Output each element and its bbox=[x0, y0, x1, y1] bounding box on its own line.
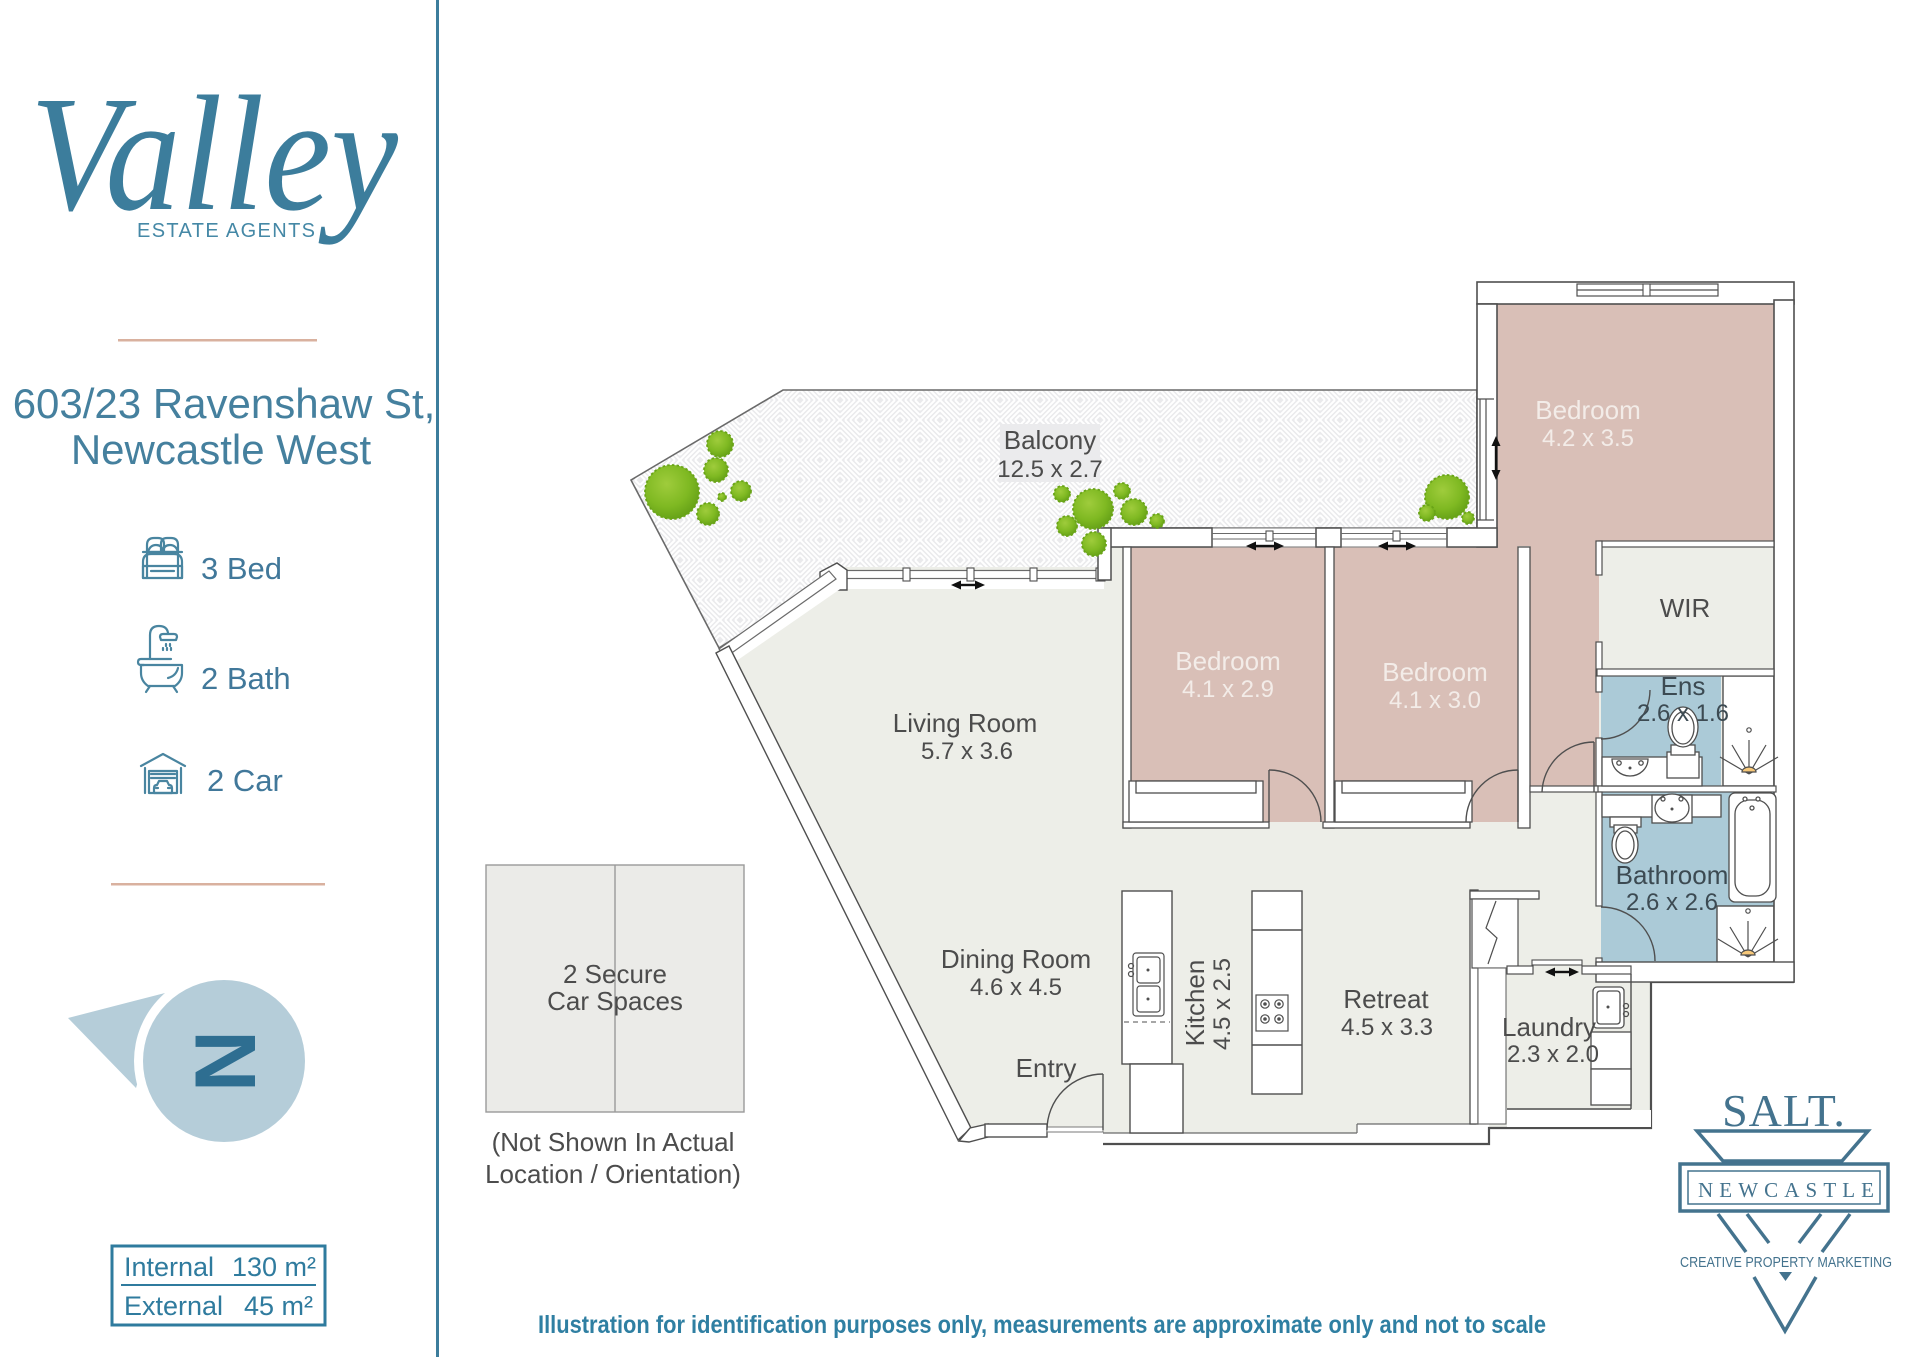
svg-text:External: External bbox=[124, 1291, 223, 1321]
svg-text:45 m²: 45 m² bbox=[244, 1291, 313, 1321]
svg-text:Living Room: Living Room bbox=[893, 708, 1038, 738]
svg-text:Bathroom: Bathroom bbox=[1616, 860, 1729, 890]
svg-text:CREATIVE PROPERTY MARKETING: CREATIVE PROPERTY MARKETING bbox=[1680, 1254, 1892, 1271]
svg-text:Entry: Entry bbox=[1016, 1053, 1077, 1083]
svg-text:N: N bbox=[178, 1030, 274, 1092]
svg-text:4.2 x 3.5: 4.2 x 3.5 bbox=[1542, 425, 1634, 452]
svg-text:12.5 x 2.7: 12.5 x 2.7 bbox=[997, 456, 1102, 483]
svg-text:SALT.: SALT. bbox=[1722, 1085, 1846, 1136]
svg-text:5.7 x 3.6: 5.7 x 3.6 bbox=[921, 738, 1013, 765]
svg-text:4.5 x 3.3: 4.5 x 3.3 bbox=[1341, 1014, 1433, 1041]
svg-text:Dining Room: Dining Room bbox=[941, 944, 1091, 974]
svg-text:ESTATE AGENTS: ESTATE AGENTS bbox=[137, 220, 315, 242]
svg-text:4.5 x 2.5: 4.5 x 2.5 bbox=[1209, 958, 1236, 1050]
svg-text:NEWCASTLE: NEWCASTLE bbox=[1698, 1178, 1874, 1202]
svg-text:2.6 x 2.6: 2.6 x 2.6 bbox=[1626, 889, 1718, 916]
svg-text:130 m²: 130 m² bbox=[232, 1252, 316, 1282]
svg-text:Car Spaces: Car Spaces bbox=[547, 986, 683, 1016]
svg-text:Bedroom: Bedroom bbox=[1175, 646, 1281, 676]
svg-text:Location / Orientation): Location / Orientation) bbox=[485, 1159, 741, 1189]
svg-text:Retreat: Retreat bbox=[1343, 984, 1429, 1014]
svg-text:WIR: WIR bbox=[1660, 593, 1711, 623]
svg-text:4.1 x 3.0: 4.1 x 3.0 bbox=[1389, 687, 1481, 714]
svg-text:2.3 x 2.0: 2.3 x 2.0 bbox=[1507, 1041, 1599, 1068]
svg-text:Laundry: Laundry bbox=[1502, 1012, 1596, 1042]
svg-text:603/23 Ravenshaw St,: 603/23 Ravenshaw St, bbox=[13, 380, 436, 427]
svg-text:Bedroom: Bedroom bbox=[1382, 657, 1488, 687]
svg-text:4.1 x 2.9: 4.1 x 2.9 bbox=[1182, 676, 1274, 703]
svg-text:3 Bed: 3 Bed bbox=[201, 551, 282, 586]
svg-text:Balcony: Balcony bbox=[1004, 425, 1097, 455]
svg-text:2 Bath: 2 Bath bbox=[201, 661, 291, 696]
svg-text:Valley: Valley bbox=[30, 62, 399, 245]
svg-text:Internal: Internal bbox=[124, 1252, 214, 1282]
svg-text:4.6 x 4.5: 4.6 x 4.5 bbox=[970, 974, 1062, 1001]
svg-text:Ens: Ens bbox=[1661, 671, 1706, 701]
svg-text:Illustration for identificatio: Illustration for identification purposes… bbox=[538, 1311, 1546, 1339]
svg-text:2 Secure: 2 Secure bbox=[563, 959, 667, 989]
svg-text:(Not Shown In Actual: (Not Shown In Actual bbox=[492, 1127, 735, 1157]
svg-text:2.6 x 1.6: 2.6 x 1.6 bbox=[1637, 700, 1729, 727]
svg-text:Bedroom: Bedroom bbox=[1535, 395, 1641, 425]
svg-text:Kitchen: Kitchen bbox=[1180, 960, 1210, 1047]
svg-text:Newcastle West: Newcastle West bbox=[71, 426, 372, 473]
svg-text:2 Car: 2 Car bbox=[207, 763, 283, 798]
